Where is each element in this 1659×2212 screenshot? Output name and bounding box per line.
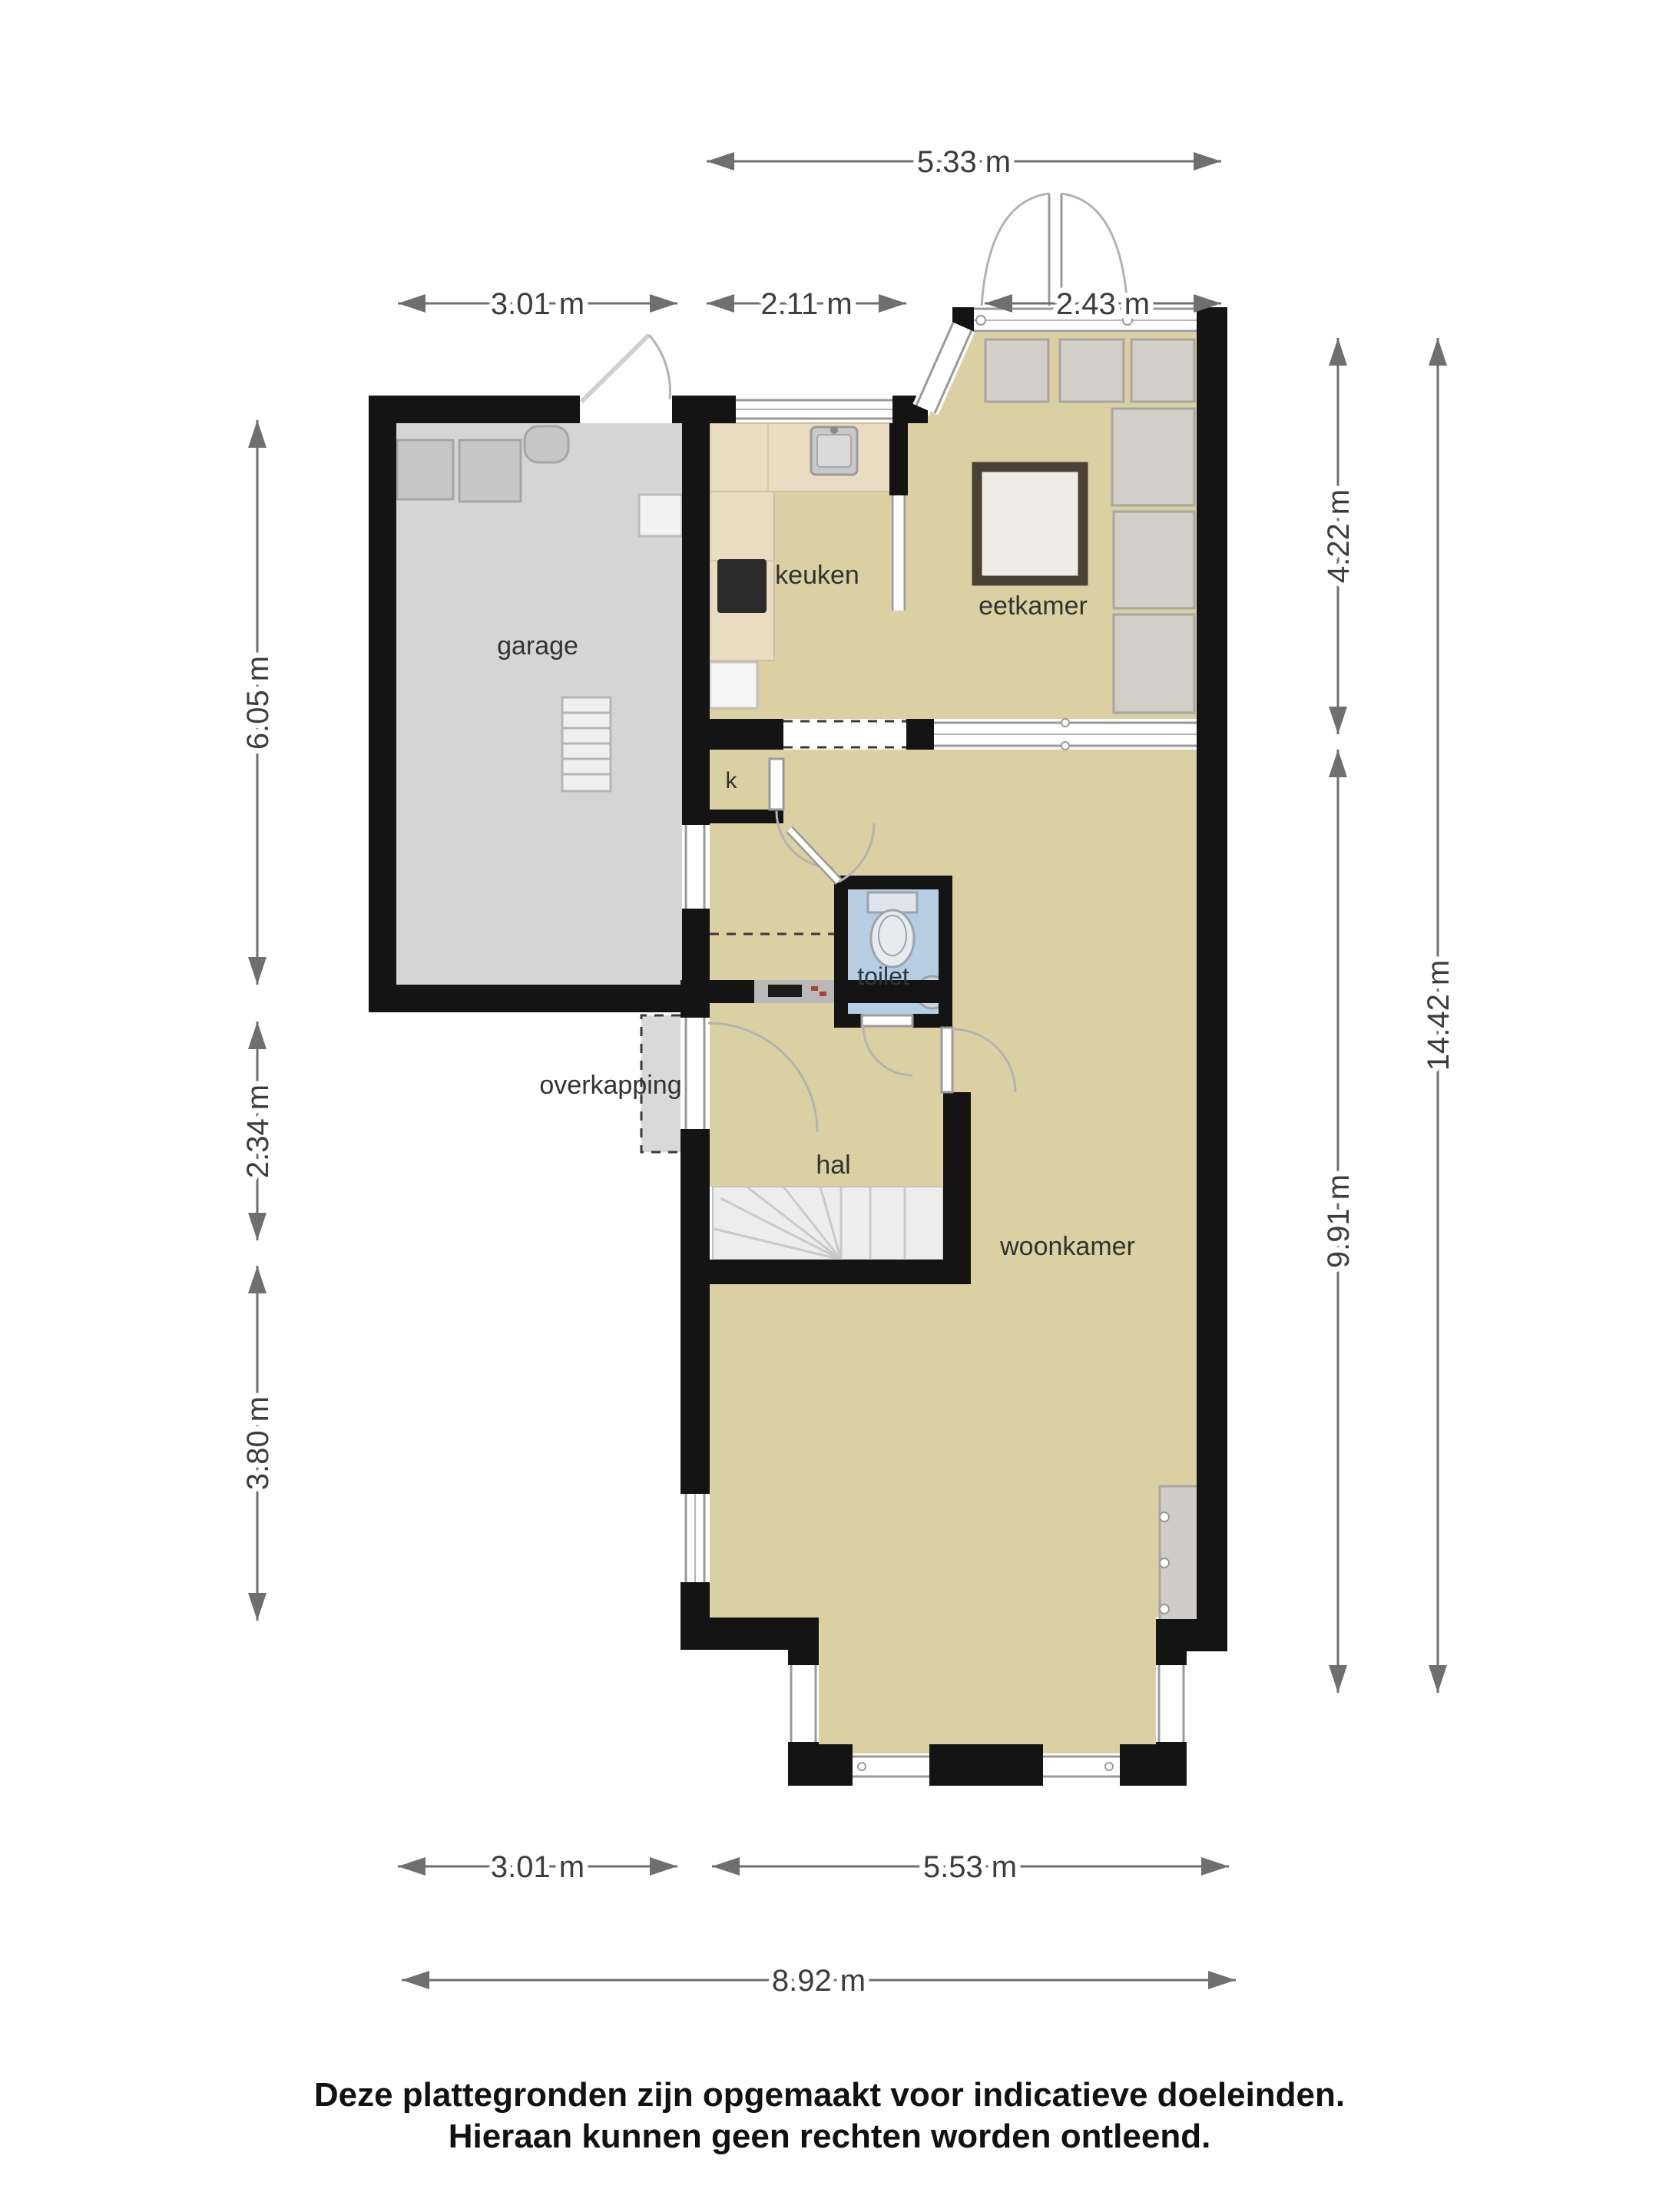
woonkamer-door-leaf	[942, 1028, 952, 1092]
counter-top	[710, 423, 891, 492]
garage-door-leaf	[581, 335, 649, 402]
room-label-eetkamer: eetkamer	[979, 591, 1088, 621]
dim-top-total: 5.33 m	[917, 145, 1011, 179]
dim-bottom-total: 8.92 m	[772, 1964, 866, 1998]
room-label-woonkamer: woonkamer	[999, 1232, 1135, 1261]
garage-door-opening	[580, 399, 672, 420]
stairs	[713, 1187, 943, 1260]
dining-table	[977, 467, 1083, 581]
garage-ladder	[562, 697, 611, 791]
dim-top-garage: 3.01 m	[491, 287, 584, 321]
floorplan-page: garage keuken eetkamer k toilet overkapp…	[0, 0, 1659, 2212]
dim-top-eetkamer: 2.43 m	[1056, 287, 1150, 321]
room-label-toilet: toilet	[857, 962, 909, 990]
floor-woonkamer-right	[952, 876, 1197, 1284]
dim-left-garage: 6.05 m	[241, 656, 275, 750]
room-label-hal: hal	[816, 1151, 850, 1180]
dim-bottom-left: 3.01 m	[491, 1850, 584, 1884]
kitchen-appliance	[710, 662, 757, 708]
room-label-kast: k	[726, 768, 738, 793]
doormat	[768, 985, 802, 997]
garage-door-arc	[649, 335, 670, 399]
garage-box-1	[397, 440, 453, 499]
room-label-overkapping: overkapping	[539, 1071, 681, 1100]
room-label-keuken: keuken	[775, 561, 859, 590]
floorplan-canvas: garage keuken eetkamer k toilet overkapp…	[0, 0, 1659, 2212]
room-label-garage: garage	[497, 631, 578, 661]
floor-woonkamer-upper	[834, 750, 1197, 876]
toilet-door-leaf	[862, 1015, 912, 1026]
floor-bay	[819, 1618, 1156, 1753]
garage-box-2	[459, 440, 521, 502]
patio-door-arc-left	[982, 194, 1049, 306]
floor-woonkamer-lower	[710, 1284, 1197, 1618]
disclaimer-line-2: Hieraan kunnen geen rechten worden ontle…	[449, 2118, 1211, 2155]
dim-right-upper: 4.22 m	[1322, 489, 1356, 583]
dim-top-keuken: 2.11 m	[760, 287, 852, 321]
cooktop	[717, 559, 767, 613]
garage-shelf-right	[639, 495, 682, 536]
dim-bottom-right: 5.53 m	[923, 1850, 1017, 1884]
dim-left-lower: 3.80 m	[241, 1396, 275, 1490]
disclaimer-line-1: Deze plattegronden zijn opgemaakt voor i…	[314, 2076, 1345, 2114]
dim-right-lower: 9.91 m	[1322, 1174, 1356, 1268]
keuken-pass-through	[783, 719, 906, 750]
kast-door-leaf	[770, 759, 783, 810]
dim-left-middle: 2.34 m	[241, 1084, 275, 1178]
garage-boiler	[525, 426, 568, 462]
faucet	[830, 426, 838, 434]
dim-right-total: 14.42 m	[1422, 960, 1455, 1071]
wc-bowl	[871, 910, 914, 967]
